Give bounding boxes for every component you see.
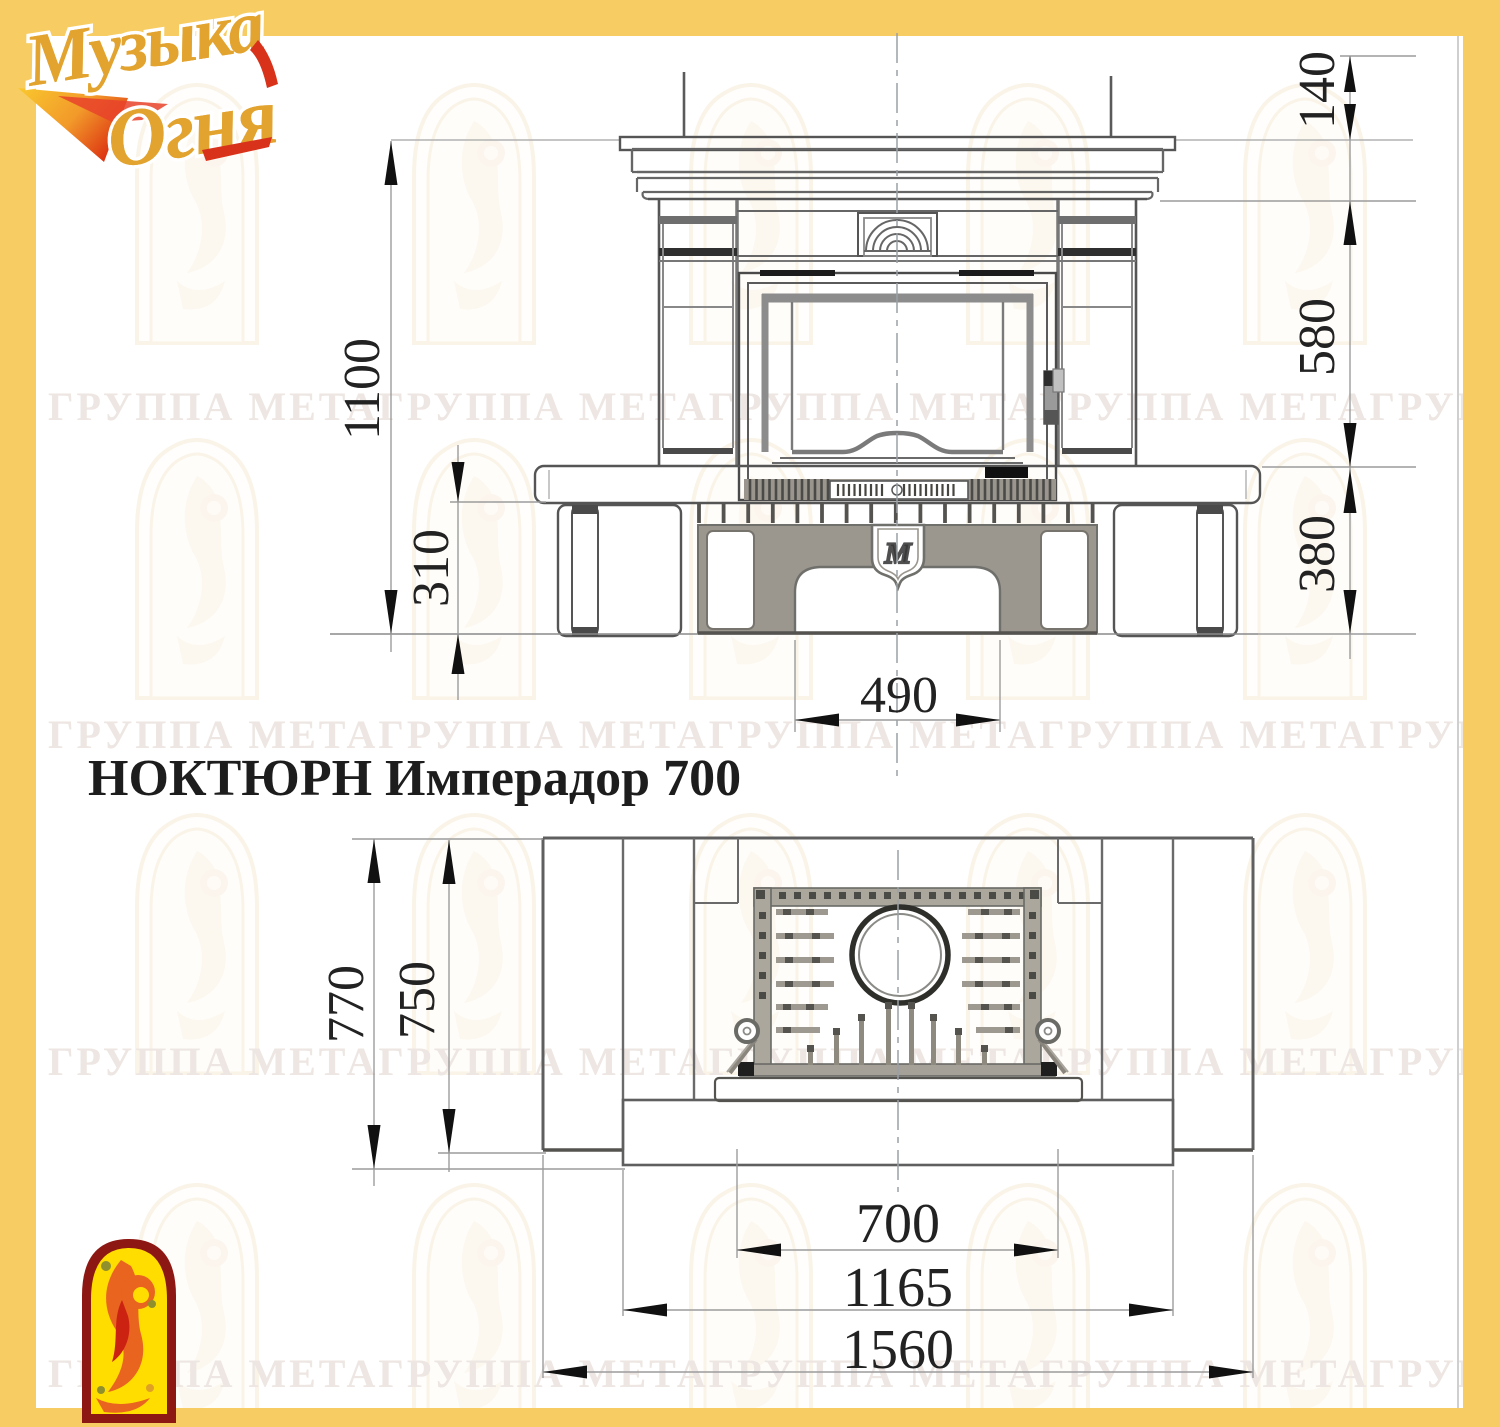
svg-text:380: 380	[1289, 515, 1346, 593]
svg-text:490: 490	[860, 667, 938, 724]
svg-text:НОКТЮРН Имперадор 700: НОКТЮРН Имперадор 700	[88, 750, 741, 807]
svg-text:1560: 1560	[842, 1319, 954, 1381]
svg-text:1165: 1165	[843, 1257, 953, 1319]
svg-text:М: М	[884, 537, 913, 570]
svg-text:ГРУППА МЕТАГРУППА МЕТАГРУППА М: ГРУППА МЕТАГРУППА МЕТАГРУППА МЕТАГРУППА …	[48, 384, 1500, 429]
svg-text:ГРУППА МЕТАГРУППА МЕТАГРУППА М: ГРУППА МЕТАГРУППА МЕТАГРУППА МЕТАГРУППА …	[48, 1351, 1500, 1396]
svg-text:750: 750	[389, 961, 446, 1039]
svg-text:140: 140	[1289, 51, 1346, 129]
svg-text:580: 580	[1289, 298, 1346, 376]
svg-text:770: 770	[318, 965, 375, 1043]
svg-text:310: 310	[403, 529, 460, 607]
svg-text:700: 700	[856, 1193, 940, 1255]
svg-text:1100: 1100	[334, 338, 391, 440]
